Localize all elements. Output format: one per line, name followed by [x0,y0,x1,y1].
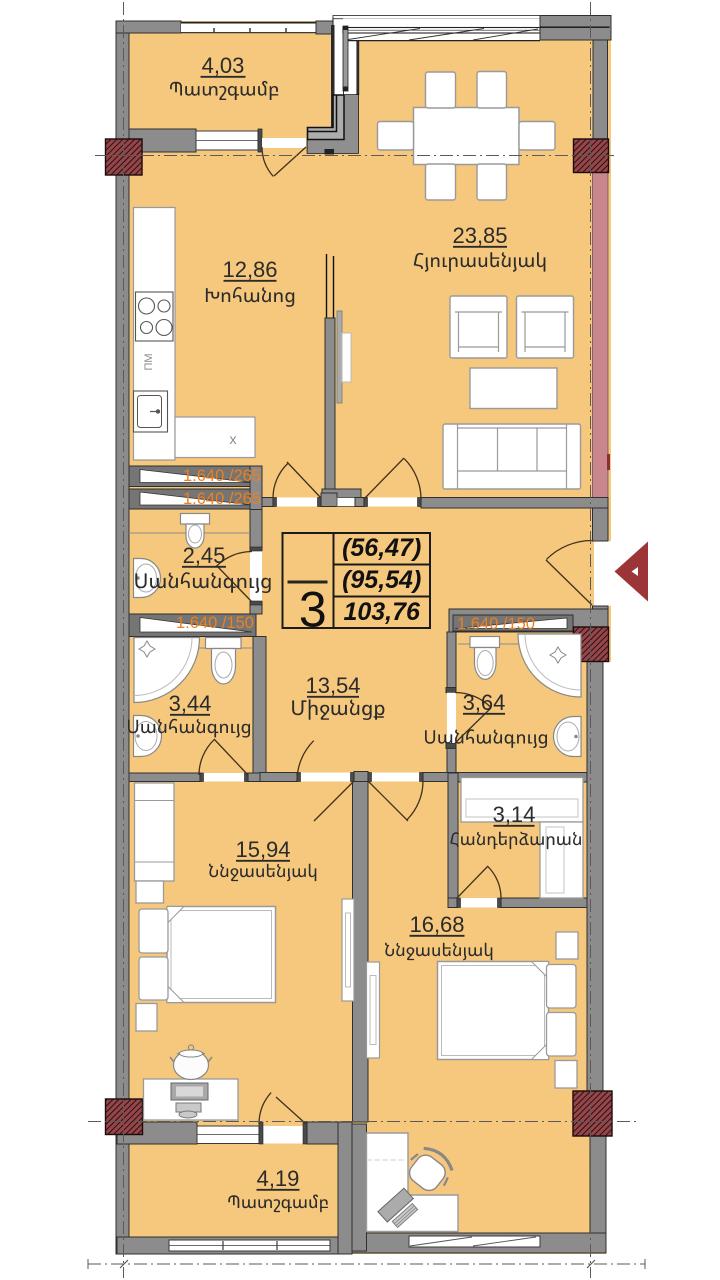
svg-text:15,94: 15,94 [235,837,290,862]
svg-text:4,19: 4,19 [257,1166,300,1191]
svg-text:4,03: 4,03 [202,53,245,78]
svg-text:(56,47): (56,47) [342,534,421,562]
svg-text:3,64: 3,64 [463,690,506,715]
svg-text:1.640 /150: 1.640 /150 [457,615,535,633]
svg-text:1.640 /265: 1.640 /265 [183,467,261,485]
svg-text:(95,54): (95,54) [342,566,421,594]
svg-text:2,45: 2,45 [183,543,226,568]
svg-text:1.640 /265: 1.640 /265 [183,490,261,508]
svg-text:16,68: 16,68 [409,912,464,937]
svg-text:3: 3 [299,582,327,638]
svg-text:x: x [230,431,237,447]
svg-text:103,76: 103,76 [343,598,421,626]
svg-text:23,85: 23,85 [452,223,507,248]
svg-text:3,44: 3,44 [169,691,212,716]
svg-text:13,54: 13,54 [305,673,360,698]
svg-text:12,86: 12,86 [222,257,277,282]
svg-text:ПМ: ПМ [143,353,155,370]
svg-text:1.640 /150: 1.640 /150 [176,614,254,632]
svg-text:3,14: 3,14 [493,802,536,827]
